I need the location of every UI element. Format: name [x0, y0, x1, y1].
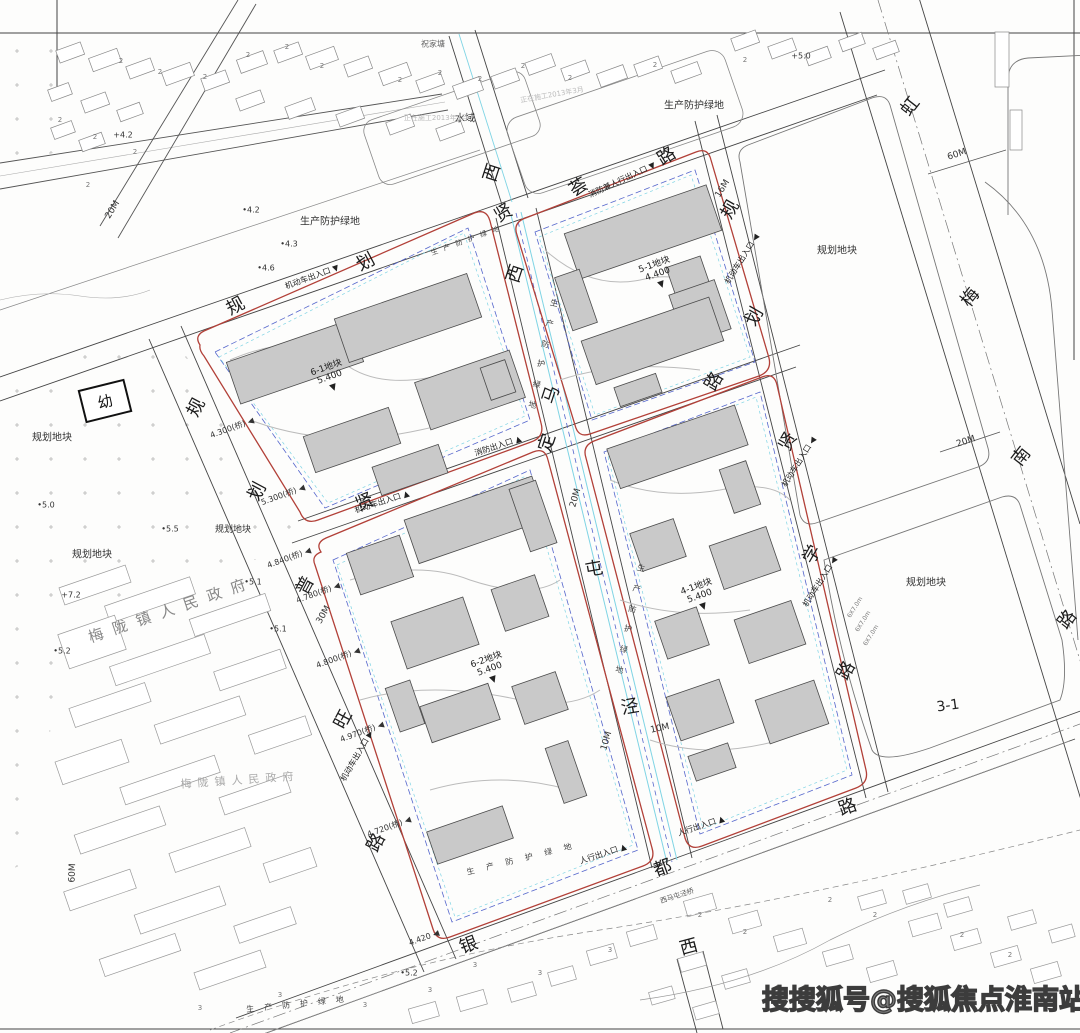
road-centerlines [230, 0, 1080, 1033]
watermark: 搜搜狐号@搜狐焦点淮南站 [762, 978, 1080, 1017]
kindergarten-label: 幼 [95, 389, 115, 413]
village-houses-north [48, 30, 1022, 152]
site-plan-drawing: 规划贤荟路贤定路规划贤学路规划普旺路银都路虹梅南路西西马屯泾西20M16M60M… [0, 0, 1080, 1033]
site-plan-canvas [0, 0, 1080, 1033]
government-compound [55, 565, 317, 990]
buildings [226, 185, 828, 864]
